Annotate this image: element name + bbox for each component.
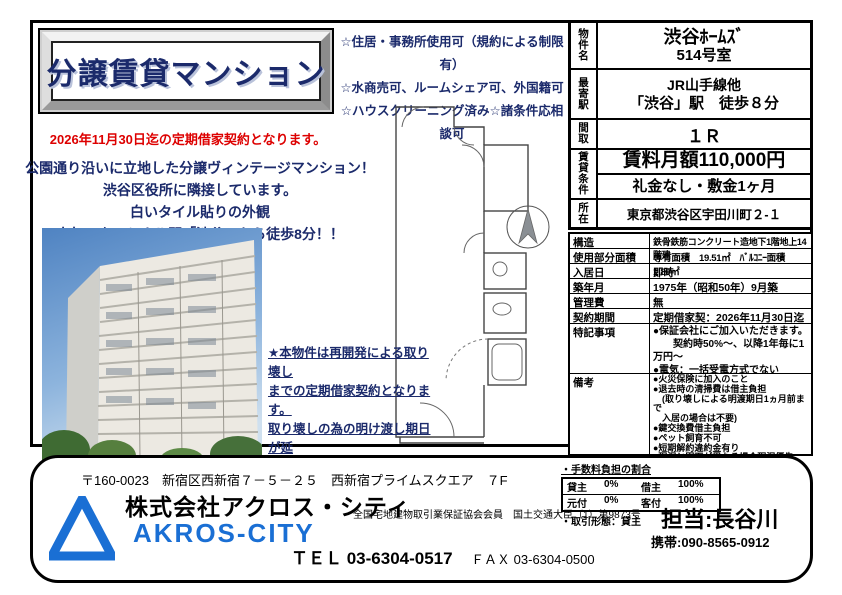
- rebuild-note-line: までの定期借家契約となります。: [268, 382, 438, 420]
- table-row: 特記事項 ●保証会社にご加入いただきます。 契約時50%～、以降1年毎に1万円～…: [570, 324, 811, 374]
- address-label: 所在: [571, 200, 598, 227]
- rebuild-note-line: 取り壊しの為の明け渡し期日が延: [268, 420, 438, 458]
- title-bevel: 分譲賃貸マンション: [42, 32, 330, 110]
- address-value: 東京都渋谷区宇田川町２-１: [598, 200, 810, 227]
- title-inner-frame: 分譲賃貸マンション: [51, 41, 321, 101]
- table-row: 入居日 即時: [570, 264, 811, 279]
- contract-notice: 2026年11月30日迄の定期借家契約となります。: [32, 129, 344, 148]
- row-nearest-station: 最寄駅 JR山手線他 「渋谷」駅 徒歩８分: [571, 70, 810, 120]
- company-name-en: AKROS-CITY: [133, 518, 315, 549]
- feature-line: ☆住居・事務所使用可（規約による制限有）: [336, 31, 568, 77]
- table-row: 管理費 無: [570, 294, 811, 309]
- layout-label: 間取: [571, 120, 598, 148]
- table-row: 契約期間 定期借家契：2026年11月30日迄: [570, 309, 811, 324]
- table-row: 使用部分面積 専有面積 19.51㎡ ﾊﾞﾙｺﾆｰ面積 1.80㎡: [570, 249, 811, 264]
- building-photo: [42, 228, 262, 473]
- title-frame: 分譲賃貸マンション: [38, 28, 334, 114]
- table-row: 築年月 1975年（昭和50年）9月築: [570, 279, 811, 294]
- layout-value: １Ｒ: [598, 120, 810, 148]
- north-arrow-icon: [505, 204, 551, 250]
- property-details-table: 構造 鉄骨鉄筋コンクリート造地下1階地上14階建 使用部分面積 専有面積 19.…: [568, 232, 813, 456]
- page-title: 分譲賃貸マンション: [47, 49, 326, 93]
- flyer-page: 分譲賃貸マンション 2026年11月30日迄の定期借家契約となります。 公園通り…: [0, 0, 842, 595]
- row-rent-terms: 賃貸条件 賃料月額110,000円 礼金なし・敷金1ヶ月: [571, 150, 810, 200]
- description-line: 公園通り沿いに立地した分譲ヴィンテージマンション！: [24, 157, 376, 179]
- table-row: 構造 鉄骨鉄筋コンクリート造地下1階地上14階建: [570, 234, 811, 249]
- rent-amount: 賃料月額110,000円: [598, 149, 810, 175]
- tel-number: ＴＥＬ 03-6304-0517: [291, 549, 453, 568]
- terms-value: 賃料月額110,000円 礼金なし・敷金1ヶ月: [598, 150, 810, 198]
- fee-share-title: ・手数料負担の割合: [561, 461, 721, 476]
- row-property-name: 物件名 渋谷ﾎｰﾑｽﾞ 514号室: [571, 23, 810, 70]
- company-footer: 〒160-0023 新宿区西新宿７－５－２５ 西新宿プライムスクエア ７F 株式…: [30, 455, 813, 583]
- company-address: 〒160-0023 新宿区西新宿７－５－２５ 西新宿プライムスクエア ７F: [81, 470, 508, 489]
- station-label: 最寄駅: [571, 70, 598, 118]
- table-row: 備考 ●火災保険に加入のこと ●退去時の清掃費は借主負担 (取り壊しによる明渡期…: [570, 374, 811, 454]
- terms-label: 賃貸条件: [571, 150, 598, 198]
- phone-row: ＴＥＬ 03-6304-0517 ＦＡＸ 03-6304-0500: [291, 544, 595, 569]
- property-name-value: 渋谷ﾎｰﾑｽﾞ 514号室: [598, 23, 810, 68]
- station-value: JR山手線他 「渋谷」駅 徒歩８分: [598, 70, 810, 118]
- feature-line: ☆水商売可、ルームシェア可、外国籍可: [336, 77, 568, 100]
- description-line: 渋谷区役所に隣接しています。: [24, 179, 376, 201]
- row-layout: 間取 １Ｒ: [571, 120, 810, 150]
- agent-name: 担当:長谷川: [661, 502, 778, 534]
- agent-mobile: 携帯:090-8565-0912: [651, 532, 770, 551]
- fax-number: ＦＡＸ 03-6304-0500: [471, 552, 595, 567]
- description-line: 白いタイル貼りの外観: [24, 201, 376, 223]
- company-logo-icon: [49, 496, 115, 562]
- property-summary-table: 物件名 渋谷ﾎｰﾑｽﾞ 514号室 最寄駅 JR山手線他 「渋谷」駅 徒歩８分 …: [568, 20, 813, 230]
- deposit-terms: 礼金なし・敷金1ヶ月: [632, 175, 775, 199]
- row-address: 所在 東京都渋谷区宇田川町２-１: [571, 200, 810, 227]
- rebuild-note-line: ★本物件は再開発による取り壊し: [268, 344, 438, 382]
- property-name-label: 物件名: [571, 23, 598, 68]
- table-row: 貸主 0% 借主 100%: [563, 479, 719, 495]
